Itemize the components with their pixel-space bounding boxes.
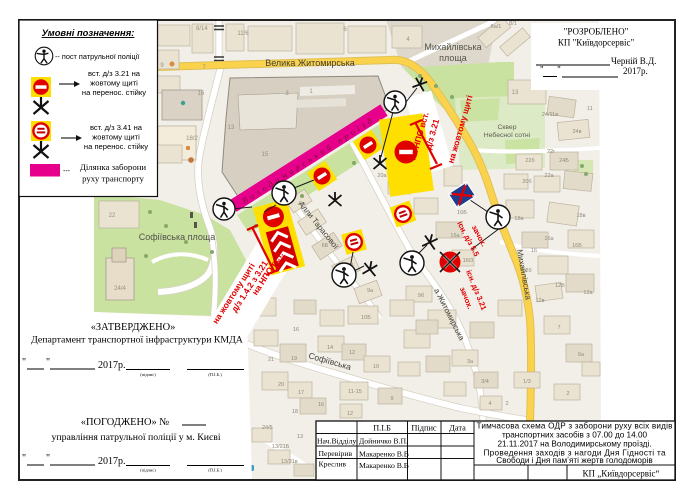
svg-text:22а: 22а xyxy=(544,173,554,179)
svg-text:---: --- xyxy=(63,168,71,175)
svg-text:Умовні позначення:: Умовні позначення: xyxy=(42,27,135,38)
svg-text:«ЗАТВЕРДЖЕНО»: «ЗАТВЕРДЖЕНО» xyxy=(91,322,176,333)
svg-text:жовтому щиті: жовтому щиті xyxy=(92,133,140,142)
svg-text:22б: 22б xyxy=(525,158,534,164)
svg-text:10: 10 xyxy=(373,364,379,370)
svg-text:16Б: 16Б xyxy=(572,243,582,249)
svg-text:18/2: 18/2 xyxy=(186,136,198,142)
svg-text:"РОЗРОБЛЕНО": "РОЗРОБЛЕНО" xyxy=(564,27,629,37)
svg-text:16а: 16а xyxy=(544,236,554,242)
svg-text:20б: 20б xyxy=(522,179,531,185)
svg-text:24Б: 24Б xyxy=(559,158,569,164)
svg-text:«ПОГОДЖЕНО» №: «ПОГОДЖЕНО» № xyxy=(81,417,169,428)
svg-text:17: 17 xyxy=(298,390,304,396)
svg-text:11/6: 11/6 xyxy=(237,31,249,37)
svg-text:15а: 15а xyxy=(450,233,460,239)
svg-text:22г: 22г xyxy=(547,149,555,155)
svg-text:" ": " " xyxy=(540,65,561,75)
svg-text:6а/1: 6а/1 xyxy=(491,24,502,30)
svg-text:21.11.2017 на Володимирському: 21.11.2017 на Володимирському проїзді. xyxy=(497,440,651,449)
svg-text:1/3: 1/3 xyxy=(523,379,531,385)
svg-text:16: 16 xyxy=(318,402,324,408)
svg-text:14: 14 xyxy=(327,345,333,351)
svg-text:9: 9 xyxy=(390,396,393,402)
svg-text:8/1: 8/1 xyxy=(509,21,517,27)
svg-text:24/11в: 24/11в xyxy=(542,112,558,118)
svg-text:20: 20 xyxy=(278,382,284,388)
svg-text:13/21Б: 13/21Б xyxy=(272,444,290,450)
svg-text:(П.І.Б.): (П.І.Б.) xyxy=(208,372,222,377)
svg-text:Тимчасова схема ОДР з заборони: Тимчасова схема ОДР з заборони руху всіх… xyxy=(477,422,673,431)
svg-text:Черній В.Д.: Черній В.Д. xyxy=(611,56,656,66)
svg-text:15: 15 xyxy=(262,152,269,158)
svg-text:Сквер: Сквер xyxy=(498,124,517,131)
svg-text:2017р.: 2017р. xyxy=(98,360,126,371)
svg-text:": " xyxy=(46,357,50,368)
svg-text:2: 2 xyxy=(566,391,569,397)
svg-text:жовтому щиті: жовтому щиті xyxy=(90,79,138,88)
svg-text:16: 16 xyxy=(198,91,205,97)
svg-text:руху транспорту: руху транспорту xyxy=(82,174,144,184)
svg-text:22: 22 xyxy=(109,213,116,219)
svg-text:16Б: 16Б xyxy=(457,210,467,216)
svg-text:12б: 12б xyxy=(522,268,531,274)
svg-text:Нач.Відділу: Нач.Відділу xyxy=(317,437,357,446)
svg-text:Перевірив: Перевірив xyxy=(319,449,353,458)
svg-text:6а: 6а xyxy=(299,201,306,207)
svg-text:12а: 12а xyxy=(583,290,593,296)
svg-text:9б: 9б xyxy=(418,293,424,299)
svg-text:Михайлівська: Михайлівська xyxy=(424,42,481,52)
svg-text:-- пост патрульної поліції: -- пост патрульної поліції xyxy=(55,52,139,61)
svg-text:12Б: 12Б xyxy=(555,283,565,289)
svg-text:2: 2 xyxy=(505,401,508,407)
svg-text:20а: 20а xyxy=(377,173,387,179)
svg-text:18: 18 xyxy=(292,409,298,415)
svg-text:16/3: 16/3 xyxy=(463,258,474,264)
svg-text:на перенос. стійку: на перенос. стійку xyxy=(82,88,146,97)
svg-text:Велика Житомирська: Велика Житомирська xyxy=(265,58,355,68)
svg-text:вст. д/з 3.41 на: вст. д/з 3.41 на xyxy=(90,123,143,132)
svg-text:Небесної сотні: Небесної сотні xyxy=(484,131,531,139)
svg-text:Креслив: Креслив xyxy=(319,460,347,469)
svg-text:6Б: 6Б xyxy=(322,243,329,249)
svg-text:КП "Київдорсервіс": КП "Київдорсервіс" xyxy=(558,38,635,48)
svg-text:3/4: 3/4 xyxy=(481,379,489,385)
svg-text:4: 4 xyxy=(488,401,491,407)
svg-text:(підпис): (підпис) xyxy=(140,372,156,377)
svg-text:Макаренко В.В: Макаренко В.В xyxy=(359,450,409,459)
svg-text:Дойничко В.П.: Дойничко В.П. xyxy=(359,437,408,446)
svg-text:(П.І.Б.): (П.І.Б.) xyxy=(208,468,222,473)
svg-text:18в: 18в xyxy=(576,213,585,219)
svg-text:управління патрульної поліції: управління патрульної поліції у м. Києві xyxy=(51,432,220,443)
svg-text:площа: площа xyxy=(439,53,467,63)
svg-text:12: 12 xyxy=(349,350,355,356)
svg-text:12: 12 xyxy=(347,411,353,417)
svg-text:19: 19 xyxy=(291,356,297,362)
svg-text:13: 13 xyxy=(228,125,235,131)
svg-text:": " xyxy=(22,357,26,368)
svg-text:вст. д/з 3.21 на: вст. д/з 3.21 на xyxy=(88,69,141,78)
svg-text:Дата: Дата xyxy=(449,424,466,433)
svg-text:2017р.: 2017р. xyxy=(98,456,126,467)
svg-text:7: 7 xyxy=(557,325,560,331)
svg-text:(підпис): (підпис) xyxy=(140,468,156,473)
svg-text:9а: 9а xyxy=(367,288,374,294)
svg-text:24в: 24в xyxy=(572,129,581,135)
svg-text:транспортних засобів з 07.00 д: транспортних засобів з 07.00 до 14.00 xyxy=(502,431,648,440)
svg-text:21: 21 xyxy=(268,357,274,363)
svg-text:13: 13 xyxy=(512,90,519,96)
svg-text:П.І.Б: П.І.Б xyxy=(373,424,391,433)
svg-text:": " xyxy=(46,453,50,464)
svg-text:на перенос. стійку: на перенос. стійку xyxy=(84,142,148,151)
svg-text:8/14: 8/14 xyxy=(196,26,208,32)
svg-text:12в: 12в xyxy=(535,298,544,304)
svg-text:Софіївська площа: Софіївська площа xyxy=(139,232,216,242)
svg-text:11: 11 xyxy=(587,106,593,112)
svg-text:Макаренко В.В: Макаренко В.В xyxy=(359,461,409,470)
svg-text:КП „Київдорсервіс“: КП „Київдорсервіс“ xyxy=(582,469,659,479)
svg-text:Підпис: Підпис xyxy=(411,424,437,433)
svg-text:24/4: 24/4 xyxy=(114,286,126,292)
svg-text:Свободи і Дня памʼяті жертв го: Свободи і Дня памʼяті жертв голодоморів xyxy=(496,456,652,465)
svg-text:": " xyxy=(22,453,26,464)
svg-text:10Б: 10Б xyxy=(361,315,371,321)
svg-text:16: 16 xyxy=(293,327,299,333)
svg-text:11-15: 11-15 xyxy=(348,389,362,395)
svg-text:3а: 3а xyxy=(467,359,474,365)
svg-text:18а: 18а xyxy=(514,216,524,222)
svg-text:16: 16 xyxy=(531,248,537,254)
svg-text:2017р.: 2017р. xyxy=(623,66,648,76)
svg-text:13/21в: 13/21в xyxy=(281,459,298,465)
svg-text:6а: 6а xyxy=(578,352,585,358)
svg-text:Ділянка заборони: Ділянка заборони xyxy=(80,162,147,172)
svg-text:13: 13 xyxy=(297,434,303,440)
svg-text:Департамент транспортної інфра: Департамент транспортної інфраструктури … xyxy=(31,335,243,346)
svg-text:24/5: 24/5 xyxy=(262,425,273,431)
